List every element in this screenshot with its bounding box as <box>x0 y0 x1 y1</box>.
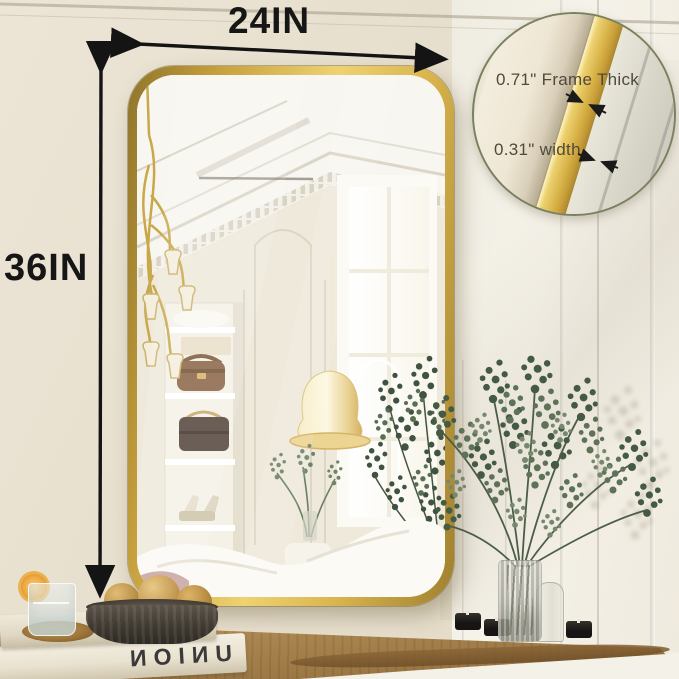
width-dimension-label: 24IN <box>228 0 310 42</box>
ribbed-glass-vase <box>498 560 542 642</box>
tealight-candle <box>455 613 481 630</box>
height-dimension-label: 36IN <box>4 247 88 290</box>
stems-in-vase <box>507 565 533 635</box>
tealight-candle <box>566 621 592 638</box>
book-spine-label: UNION <box>122 640 232 673</box>
bowl-body <box>86 605 218 644</box>
inset-measure-arrows <box>474 14 674 214</box>
water-glass <box>28 583 76 636</box>
decor-bowl <box>86 595 218 644</box>
eucalyptus-branches <box>385 355 679 590</box>
product-photo-gold-mirror: 24IN 36IN 0.71" Frame Thick 0.31" width <box>0 0 679 679</box>
frame-detail-inset: 0.71" Frame Thick 0.31" width <box>472 12 676 216</box>
water-line <box>33 602 69 604</box>
